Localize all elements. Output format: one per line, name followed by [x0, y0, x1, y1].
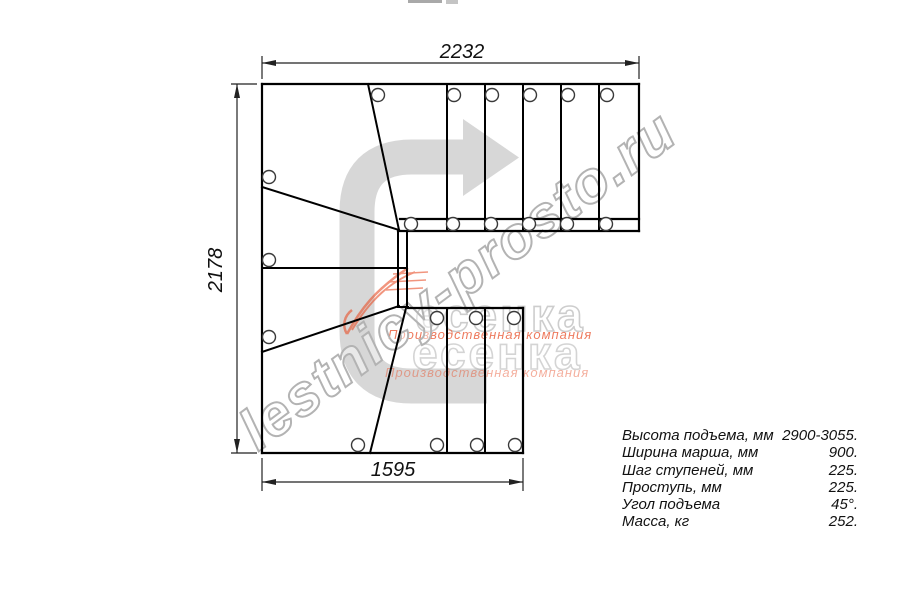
spec-value: 225. — [829, 479, 858, 496]
spec-label: Масса, кг — [622, 513, 689, 530]
top-crop-artifact — [408, 0, 458, 4]
spec-label: Проступь, мм — [622, 479, 722, 496]
bottom-dimension-label: 1595 — [371, 459, 416, 481]
spec-label: Высота подъема, мм — [622, 427, 774, 444]
spec-label: Угол подъема — [622, 496, 720, 513]
spec-value: 225. — [829, 462, 858, 479]
spec-row-angle: Угол подъема 45°. — [622, 496, 858, 513]
drawing-canvas: есенка Производственная компания есенка … — [0, 0, 900, 600]
spec-row-step-pitch: Шаг ступеней, мм 225. — [622, 462, 858, 479]
spec-table: Высота подъема, мм 2900-3055. Ширина мар… — [622, 427, 858, 531]
left-dimension-label: 2178 — [205, 248, 227, 294]
spec-value: 2900-3055. — [782, 427, 858, 444]
spec-value: 252. — [829, 513, 858, 530]
spec-row-march-width: Ширина марша, мм 900. — [622, 444, 858, 461]
spec-label: Ширина марша, мм — [622, 444, 758, 461]
top-dimension-label: 2232 — [439, 41, 485, 63]
spec-row-mass: Масса, кг 252. — [622, 513, 858, 530]
spec-row-height: Высота подъема, мм 2900-3055. — [622, 427, 858, 444]
spec-label: Шаг ступеней, мм — [622, 462, 753, 479]
spec-value: 900. — [829, 444, 858, 461]
logo-caption-row2: Производственная компания — [385, 365, 589, 380]
spec-value: 45°. — [831, 496, 858, 513]
spec-row-tread: Проступь, мм 225. — [622, 479, 858, 496]
